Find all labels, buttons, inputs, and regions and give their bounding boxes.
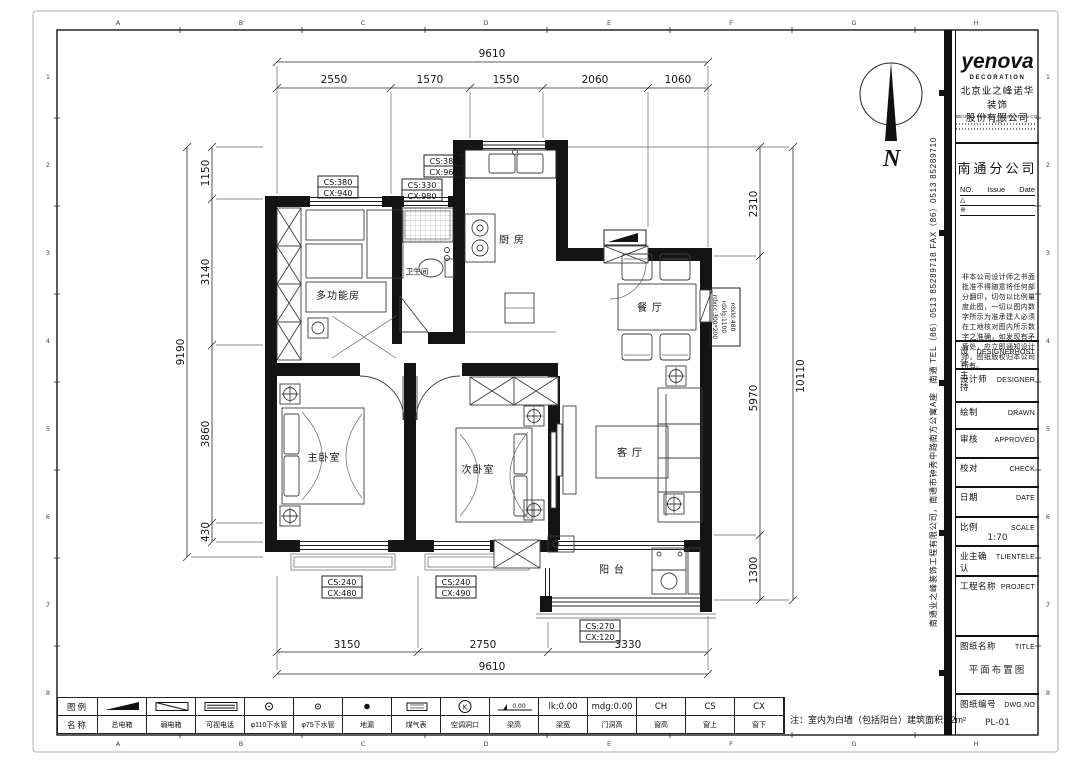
- legend-name: 门洞高: [588, 716, 637, 733]
- grid-letter: G: [851, 19, 856, 27]
- titleblock-row-client: 业主确认 TLIENTELE: [956, 545, 1039, 574]
- titleblock-row-date: 日期 DATE: [956, 486, 1039, 503]
- grid-number: 5: [1046, 425, 1050, 433]
- dim-top-seg: 1570: [417, 74, 444, 86]
- video-phone-icon: [196, 698, 245, 715]
- drain-pipe-75-icon: [294, 698, 343, 715]
- window-tag: CS:240 CX:480: [322, 576, 362, 598]
- window-tag: CS:380 CX:940: [318, 176, 358, 198]
- beam-width-symbol: lk:0.00: [539, 698, 588, 715]
- dim-top-seg: 2550: [321, 74, 348, 86]
- rev-col-issue: Issue: [987, 185, 1005, 194]
- titleblock-row-project: 工程名称 PROJECT: [956, 575, 1039, 592]
- door-height-symbol: mdg:0.00: [588, 698, 637, 715]
- row-label-en: DESIGNER: [997, 377, 1035, 384]
- floor-plan-canvas: A B C D E F G H A B C D E F G H 1 2 3 4 …: [0, 0, 1080, 763]
- row-label-en: DESIGNERHOST: [977, 349, 1035, 356]
- dim-left-seg: 3860: [200, 421, 212, 448]
- legend-name: 窗高: [637, 716, 686, 733]
- grid-number: 2: [46, 161, 50, 169]
- legend-name: φ75下水管: [294, 716, 343, 733]
- grid-number: 6: [46, 513, 50, 521]
- grid-number: 3: [1046, 249, 1050, 257]
- legend-name: 空调洞口: [441, 716, 490, 733]
- grid-letter: C: [361, 19, 366, 27]
- fine-print-line: [956, 128, 1039, 130]
- grid-letter: H: [974, 19, 979, 27]
- dim-bottom-seg: 3150: [334, 639, 361, 651]
- row-label-cn: 设计师: [960, 373, 987, 385]
- beam-tag-line: rdxcc:300*200: [711, 295, 718, 339]
- row-label-cn: 图纸编号: [960, 698, 996, 710]
- legend-name-row: 名称 总电箱 弱电箱 可视电话 φ110下水管 φ75下水管 地漏 煤气表 空调…: [58, 716, 784, 733]
- room-label-multi: 多功能房: [316, 289, 360, 302]
- row-label-cn: 图纸名称: [960, 640, 996, 652]
- grid-number: 3: [46, 249, 50, 257]
- legend-table: 图例 K 0.00 lk:0.00 mdg:0.00 CH CS CX 名称 总…: [57, 697, 785, 734]
- row-label-cn: 工程名称: [960, 580, 996, 592]
- ac-opening-icon: K: [441, 698, 490, 715]
- dim-top-overall: 9610: [479, 48, 506, 60]
- legend-name: 地漏: [343, 716, 392, 733]
- grid-number: 2: [1046, 161, 1050, 169]
- company-contact-vertical-text: 南通业之峰装饰工程有限公司，南通市钟秀中路南方公寓A座 南通 TEL（86）05…: [928, 37, 940, 727]
- room-label-second: 次卧室: [462, 463, 495, 476]
- dim-right-seg: 5970: [748, 385, 760, 412]
- floor-drain-icon: [343, 698, 392, 715]
- row-label-en: DATE: [1016, 495, 1035, 502]
- row-label-en: SCALE: [1011, 525, 1035, 532]
- room-label-living: 客 厅: [617, 446, 643, 459]
- room-label-balcony: 阳 台: [599, 563, 625, 576]
- area-note: 注：室内为白墙（包括阳台）建筑面积:82m²: [790, 713, 1035, 726]
- titleblock-row-approved: 审核 APPROVED: [956, 428, 1039, 445]
- drawing-title-value: 平面布置图: [956, 662, 1039, 676]
- drawing-sheet: A B C D E F G H A B C D E F G H 1 2 3 4 …: [0, 0, 1080, 763]
- room-label-kitchen: 厨 房: [499, 233, 525, 246]
- beam-height-icon: 0.00: [490, 698, 539, 715]
- legend-name: φ110下水管: [245, 716, 294, 733]
- row-label-en: APPROVED: [995, 437, 1036, 444]
- tag-cx: CX:480: [327, 589, 356, 598]
- legend-name: 窗下: [735, 716, 784, 733]
- dim-top-seg: 1060: [665, 74, 692, 86]
- grid-number: 4: [1046, 337, 1050, 345]
- row-label-en: TITLE: [1015, 644, 1035, 651]
- title-block: yenova DECORATION 北京业之峰诺华装饰 股份有限公司 BEIJI…: [955, 30, 1039, 735]
- logo-subtitle: DECORATION: [956, 75, 1039, 81]
- grid-letter: A: [116, 19, 121, 27]
- titleblock-row-drawn: 绘制 DRAWN: [956, 401, 1039, 418]
- titleblock-row-designer: 设计师 DESIGNER: [956, 368, 1039, 385]
- grid-number: 7: [46, 601, 50, 609]
- grid-letter: G: [851, 740, 856, 748]
- divider: [956, 142, 1039, 144]
- window-tag: CS:240 CX:490: [436, 576, 476, 598]
- legend-name: 煤气表: [392, 716, 441, 733]
- logo-wordmark: yenova: [956, 50, 1039, 74]
- room-label-master: 主卧室: [308, 451, 341, 464]
- scale-value: 1:70: [956, 533, 1039, 543]
- legend-name: 弱电箱: [147, 716, 196, 733]
- dim-right-seg: 2310: [748, 191, 760, 218]
- grid-letter: D: [483, 19, 488, 27]
- fine-print-line: [956, 123, 1039, 125]
- rev-row: ※: [960, 206, 1035, 216]
- window-tag: CS:380 CX:960: [424, 155, 464, 177]
- grid-number: 8: [46, 689, 50, 697]
- row-label-cn: 校对: [960, 462, 978, 474]
- row-label-en: DRAWN: [1008, 410, 1035, 417]
- grid-letter: F: [729, 740, 733, 748]
- row-label-en: TLIENTELE: [996, 554, 1035, 561]
- tag-cs: CS:240: [328, 578, 357, 587]
- legend-header-symbols: 图例: [58, 698, 98, 715]
- dim-left-seg: 3140: [200, 259, 212, 286]
- branch-name: 南通分公司: [956, 158, 1039, 177]
- grid-number: 1: [46, 73, 50, 81]
- rev-col-no: NO.: [960, 185, 973, 194]
- row-label-cn: 比例: [960, 521, 978, 533]
- legend-name: 总电箱: [98, 716, 147, 733]
- tag-cx: CX:960: [429, 168, 458, 177]
- dim-left-seg: 1150: [200, 160, 212, 187]
- grid-letter: A: [116, 740, 121, 748]
- row-label-en: CHECK: [1009, 466, 1035, 473]
- legend-header-names: 名称: [58, 716, 98, 733]
- company-name-line1: 北京业之峰诺华装饰: [956, 85, 1039, 112]
- row-label-en: DWG.NO: [1004, 702, 1035, 709]
- grid-number: 7: [1046, 601, 1050, 609]
- room-label-dining: 餐 厅: [637, 301, 663, 314]
- dim-left-seg: 430: [200, 522, 212, 542]
- compass-label: N: [882, 146, 902, 172]
- row-label-cn: 业主确认: [960, 550, 996, 574]
- grid-letter: F: [729, 19, 733, 27]
- rev-row: △: [960, 196, 1035, 206]
- grid-letter: B: [239, 740, 243, 748]
- grid-number: 4: [46, 337, 50, 345]
- dim-top-seg: 1550: [493, 74, 520, 86]
- dim-bottom-seg: 2750: [470, 639, 497, 651]
- grid-letter: B: [239, 19, 243, 27]
- titleblock-row-designerhost: 设计主持 DESIGNERHOST: [956, 340, 1039, 393]
- legend-name: 窗上: [686, 716, 735, 733]
- tag-cs: CS:380: [324, 178, 353, 187]
- window-height-symbol: CH: [637, 698, 686, 715]
- svg-text:K: K: [462, 703, 467, 711]
- grid-number: 6: [1046, 513, 1050, 521]
- titleblock-row-dwgno: 图纸编号 DWG.NO: [956, 693, 1039, 710]
- row-label-cn: 审核: [960, 433, 978, 445]
- grid-number: 5: [46, 425, 50, 433]
- window-bottom-symbol: CX: [735, 698, 784, 715]
- tag-cx: CX:940: [323, 189, 352, 198]
- grid-letter: E: [607, 19, 611, 27]
- dim-top-seg: 2060: [582, 74, 609, 86]
- dim-bottom-overall: 9610: [479, 661, 506, 673]
- svg-text:0.00: 0.00: [512, 703, 526, 710]
- legend-name: 梁宽: [539, 716, 588, 733]
- legend-name: 梁高: [490, 716, 539, 733]
- beam-tag-line: rdxlg:1100: [720, 301, 727, 334]
- grid-number: 8: [1046, 689, 1050, 697]
- room-label-bath: 卫生间: [406, 266, 429, 276]
- window-tag: CS:270 CX:120: [580, 620, 620, 642]
- tag-cs: CS:330: [408, 181, 437, 190]
- tag-cs: CS:270: [586, 622, 615, 631]
- grid-letter: C: [361, 740, 366, 748]
- dim-bottom-seg: 3330: [615, 639, 642, 651]
- gas-meter-icon: [392, 698, 441, 715]
- legend-name: 可视电话: [196, 716, 245, 733]
- titleblock-row-scale: 比例 SCALE: [956, 516, 1039, 533]
- rev-col-date: Date: [1019, 185, 1035, 194]
- tag-cx: CX:490: [441, 589, 470, 598]
- revision-table: NO. Issue Date △ ※: [960, 185, 1035, 216]
- company-logo: yenova DECORATION: [956, 50, 1039, 81]
- grid-number: 1: [1046, 73, 1050, 81]
- main-electric-box-icon: [98, 698, 147, 715]
- grid-letter: D: [483, 740, 488, 748]
- weak-electric-box-icon: [147, 698, 196, 715]
- window-top-symbol: CS: [686, 698, 735, 715]
- grid-letter: E: [607, 740, 611, 748]
- dim-right-overall: 10110: [795, 359, 807, 392]
- tag-cx: CX:980: [407, 192, 436, 201]
- legend-symbol-row: 图例 K 0.00 lk:0.00 mdg:0.00 CH CS CX: [58, 698, 784, 716]
- dim-right-seg: 1300: [748, 557, 760, 584]
- tag-cs: CS:240: [442, 578, 471, 587]
- row-label-cn: 日期: [960, 491, 978, 503]
- window-tag: CS:330 CX:980: [402, 179, 442, 201]
- tag-cs: CS:380: [430, 157, 459, 166]
- row-label-en: PROJECT: [1001, 584, 1035, 591]
- tag-cx: CX:120: [585, 633, 614, 642]
- titleblock-divider-bar: [944, 30, 952, 735]
- titleblock-row-check: 校对 CHECK: [956, 457, 1039, 474]
- grid-letter: H: [974, 740, 979, 748]
- row-label-cn: 绘制: [960, 406, 978, 418]
- titleblock-row-title: 图纸名称 TITLE: [956, 635, 1039, 652]
- drain-pipe-110-icon: [245, 698, 294, 715]
- beam-tag-line: rdxld:480: [729, 303, 736, 332]
- dim-left-overall: 9190: [175, 339, 187, 366]
